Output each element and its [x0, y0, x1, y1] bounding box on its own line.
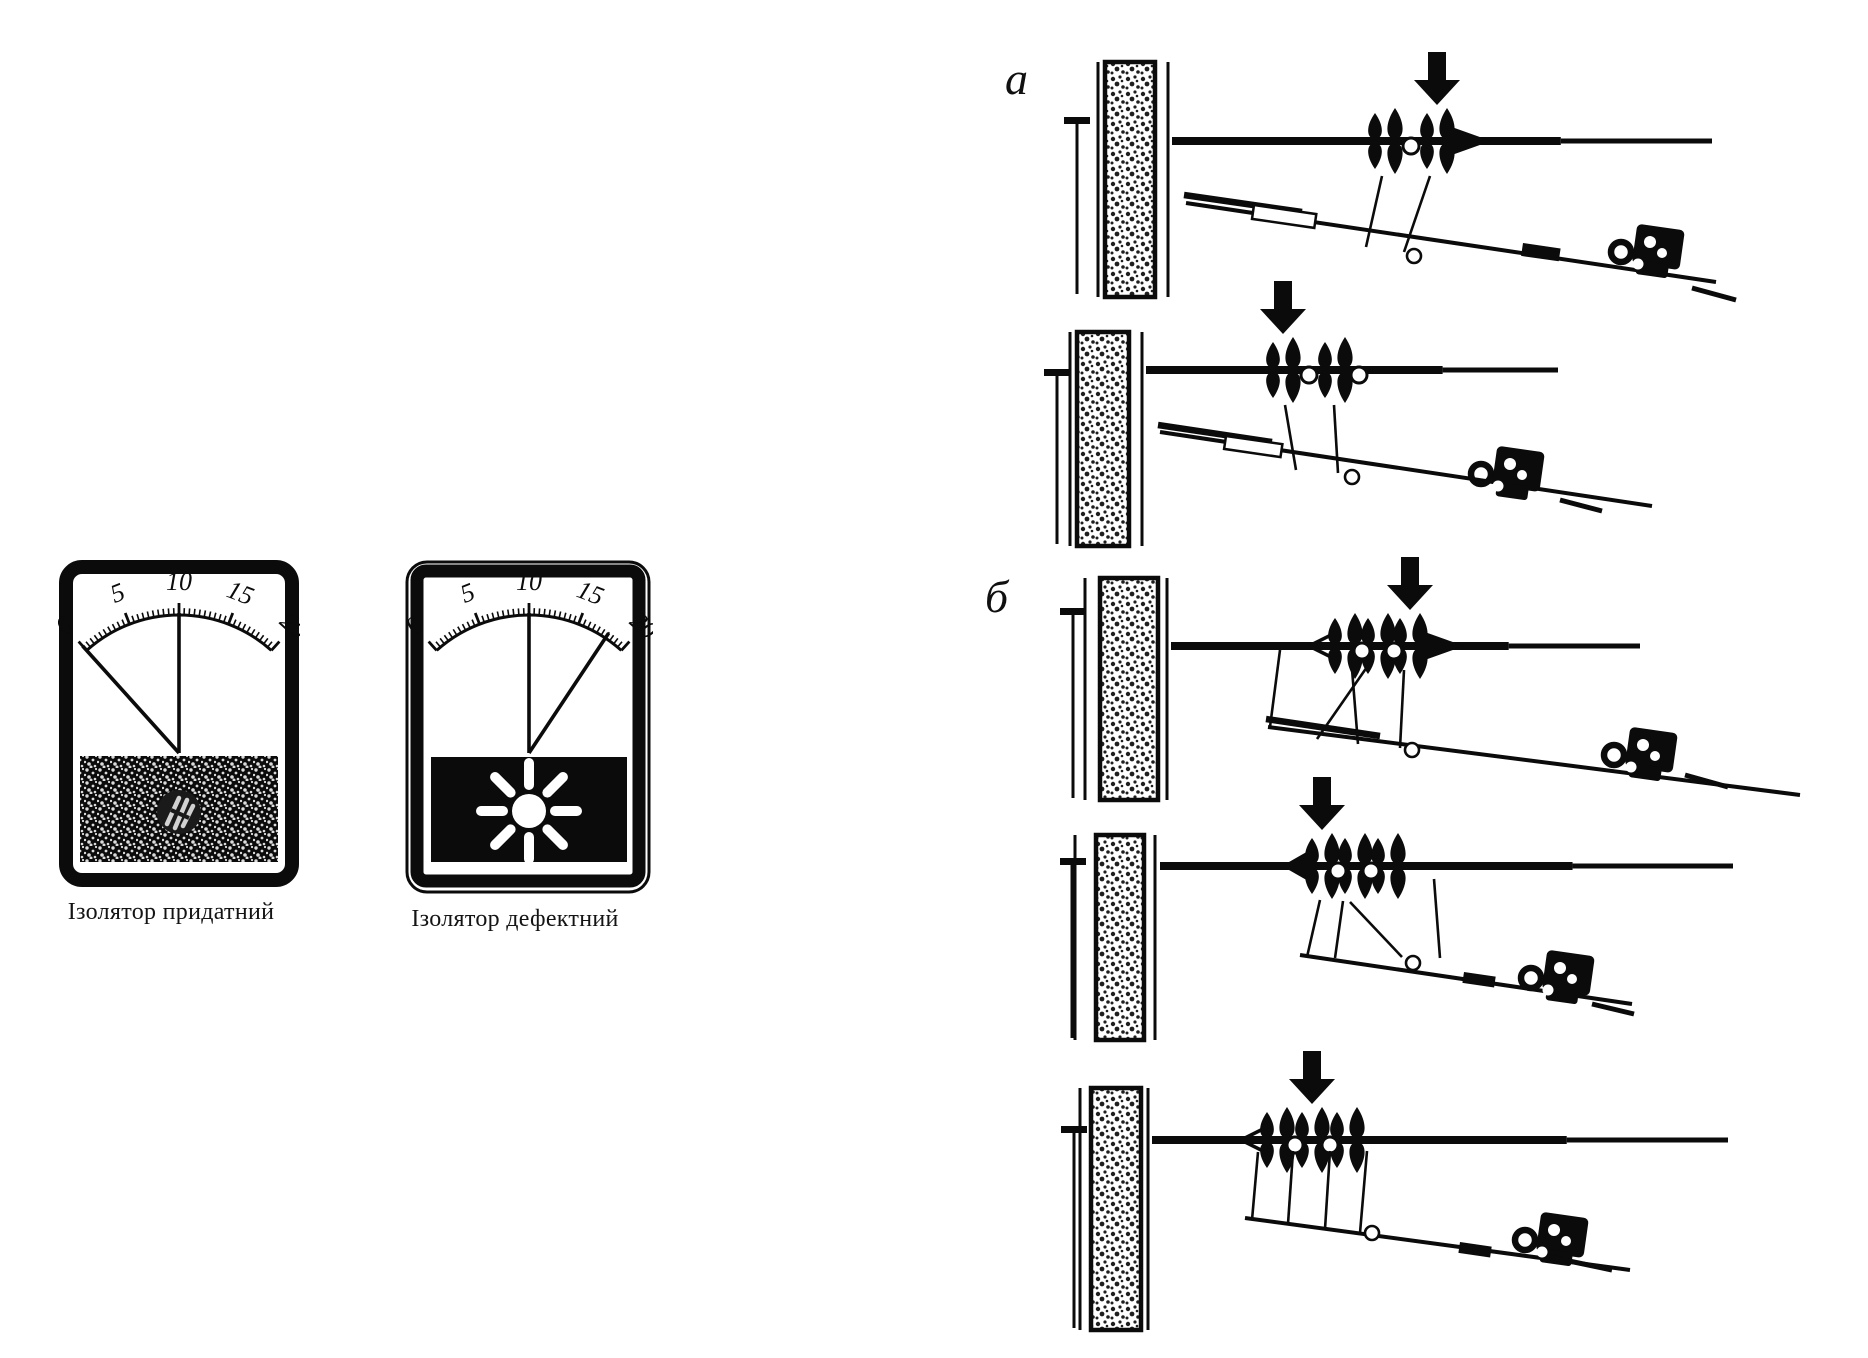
rod-joint — [1407, 249, 1421, 263]
rod-joint — [1405, 743, 1419, 757]
rod-probe-prong — [1307, 900, 1320, 957]
insulator-coupling — [1354, 643, 1370, 659]
rod-probe-prong — [1335, 901, 1343, 958]
indicator-device — [1611, 224, 1685, 279]
rod-grip-mark — [1692, 288, 1736, 300]
insulator-coupling — [1363, 863, 1379, 879]
rod-joint — [1406, 956, 1420, 970]
rod-probe-prong — [1334, 405, 1338, 473]
scanned-figure-page: 05101520 Ізолятор придатний 05101520 Ізо… — [0, 0, 1868, 1358]
wire-wedge — [1422, 631, 1464, 661]
rod-probe-prong — [1285, 405, 1296, 470]
test-arrow — [1260, 281, 1306, 334]
rod-joint — [1345, 470, 1359, 484]
diagram-row-2 — [1044, 281, 1652, 546]
ground-rod-cap — [1061, 1126, 1087, 1133]
insulator-coupling — [1301, 367, 1317, 383]
diagram-row-3 — [1060, 557, 1800, 800]
insulator-coupling — [1322, 1137, 1338, 1153]
ground-rod-cap — [1060, 608, 1086, 615]
rod-grip-mark — [1592, 1004, 1634, 1014]
rod-probe-prong — [1400, 670, 1404, 748]
diagram-row-1 — [1064, 52, 1736, 300]
rod-probe-prong — [1252, 1152, 1258, 1220]
diagram-row-4 — [1060, 777, 1733, 1040]
insulator-coupling — [1330, 863, 1346, 879]
ground-rod-cap — [1060, 858, 1086, 865]
rod-joint — [1365, 1226, 1379, 1240]
diagram-row-5 — [1061, 1051, 1728, 1330]
pole-insulator-diagrams — [0, 0, 1868, 1358]
ground-rod-cap — [1064, 117, 1090, 124]
insulator-coupling — [1287, 1137, 1303, 1153]
test-arrow — [1387, 557, 1433, 610]
rod-probe-prong — [1434, 879, 1440, 958]
rod-probe-prong — [1270, 650, 1280, 727]
test-arrow — [1289, 1051, 1335, 1104]
insulator-coupling — [1351, 367, 1367, 383]
rod-grip-mark — [1560, 500, 1602, 511]
test-arrow — [1414, 52, 1460, 105]
indicator-device — [1471, 446, 1545, 501]
wire-wedge — [1449, 126, 1491, 156]
insulator-coupling — [1403, 138, 1419, 154]
insulator-coupling — [1386, 643, 1402, 659]
rod-probe-prong — [1366, 176, 1382, 247]
test-arrow — [1299, 777, 1345, 830]
rod-probe-prong — [1350, 902, 1402, 957]
ground-rod-cap — [1044, 369, 1070, 376]
